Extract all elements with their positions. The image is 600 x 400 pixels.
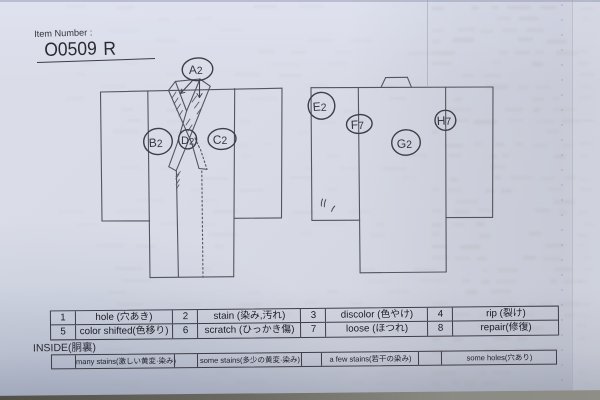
svg-text:D2: D2 [181,135,194,148]
svg-text:F7: F7 [350,117,364,132]
svg-text:A2: A2 [188,62,203,77]
svg-text:B2: B2 [148,135,163,150]
svg-text:C2: C2 [212,132,227,147]
svg-text:E2: E2 [312,99,327,114]
svg-text:H7: H7 [436,113,451,128]
svg-text:G2: G2 [396,136,412,151]
